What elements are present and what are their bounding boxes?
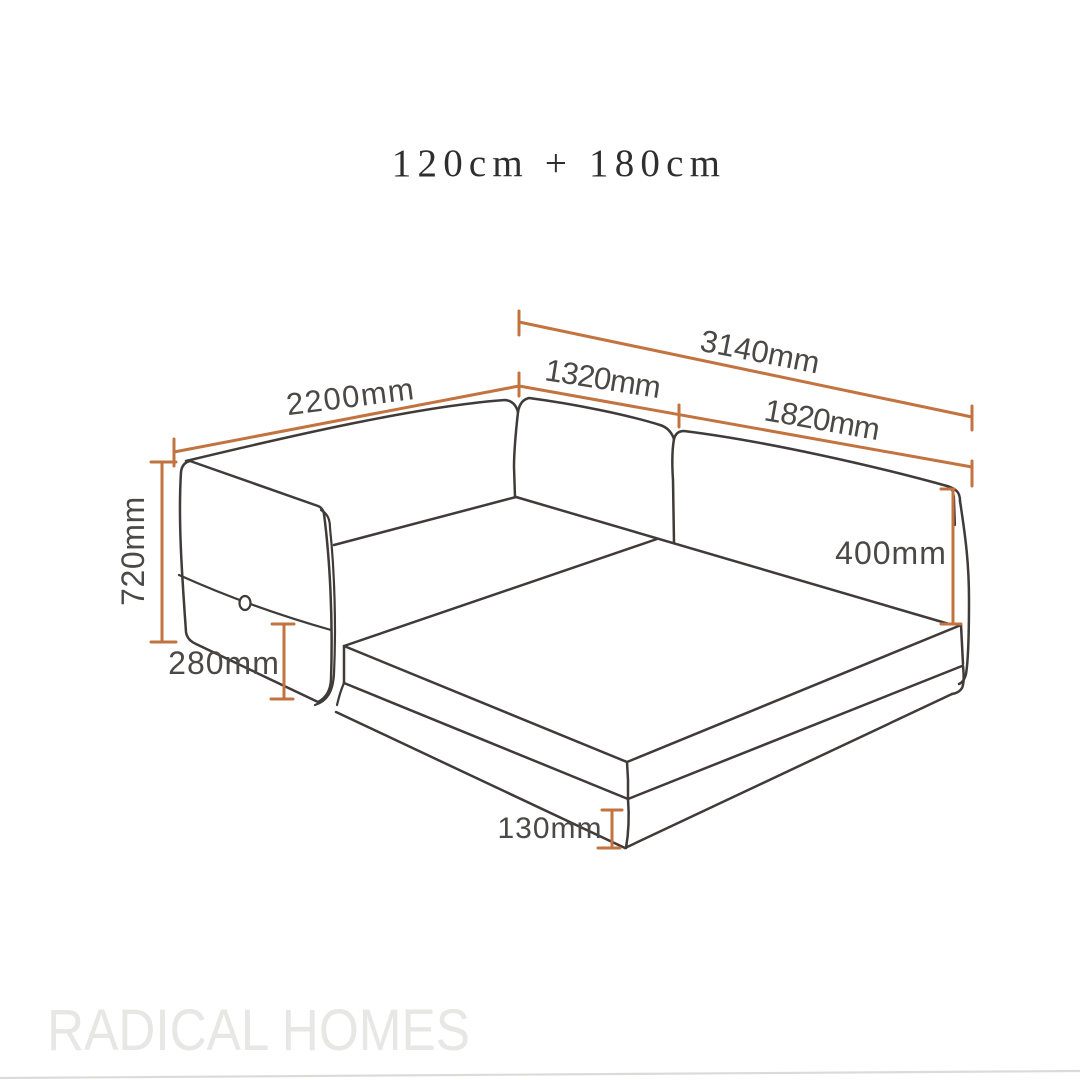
svg-text:120cm + 180cm: 120cm + 180cm <box>392 142 726 185</box>
svg-text:720mm: 720mm <box>115 496 151 606</box>
svg-text:RADICAL HOMES: RADICAL HOMES <box>47 998 470 1063</box>
svg-text:130mm: 130mm <box>497 812 602 845</box>
svg-text:400mm: 400mm <box>835 535 947 571</box>
svg-text:280mm: 280mm <box>168 645 280 681</box>
